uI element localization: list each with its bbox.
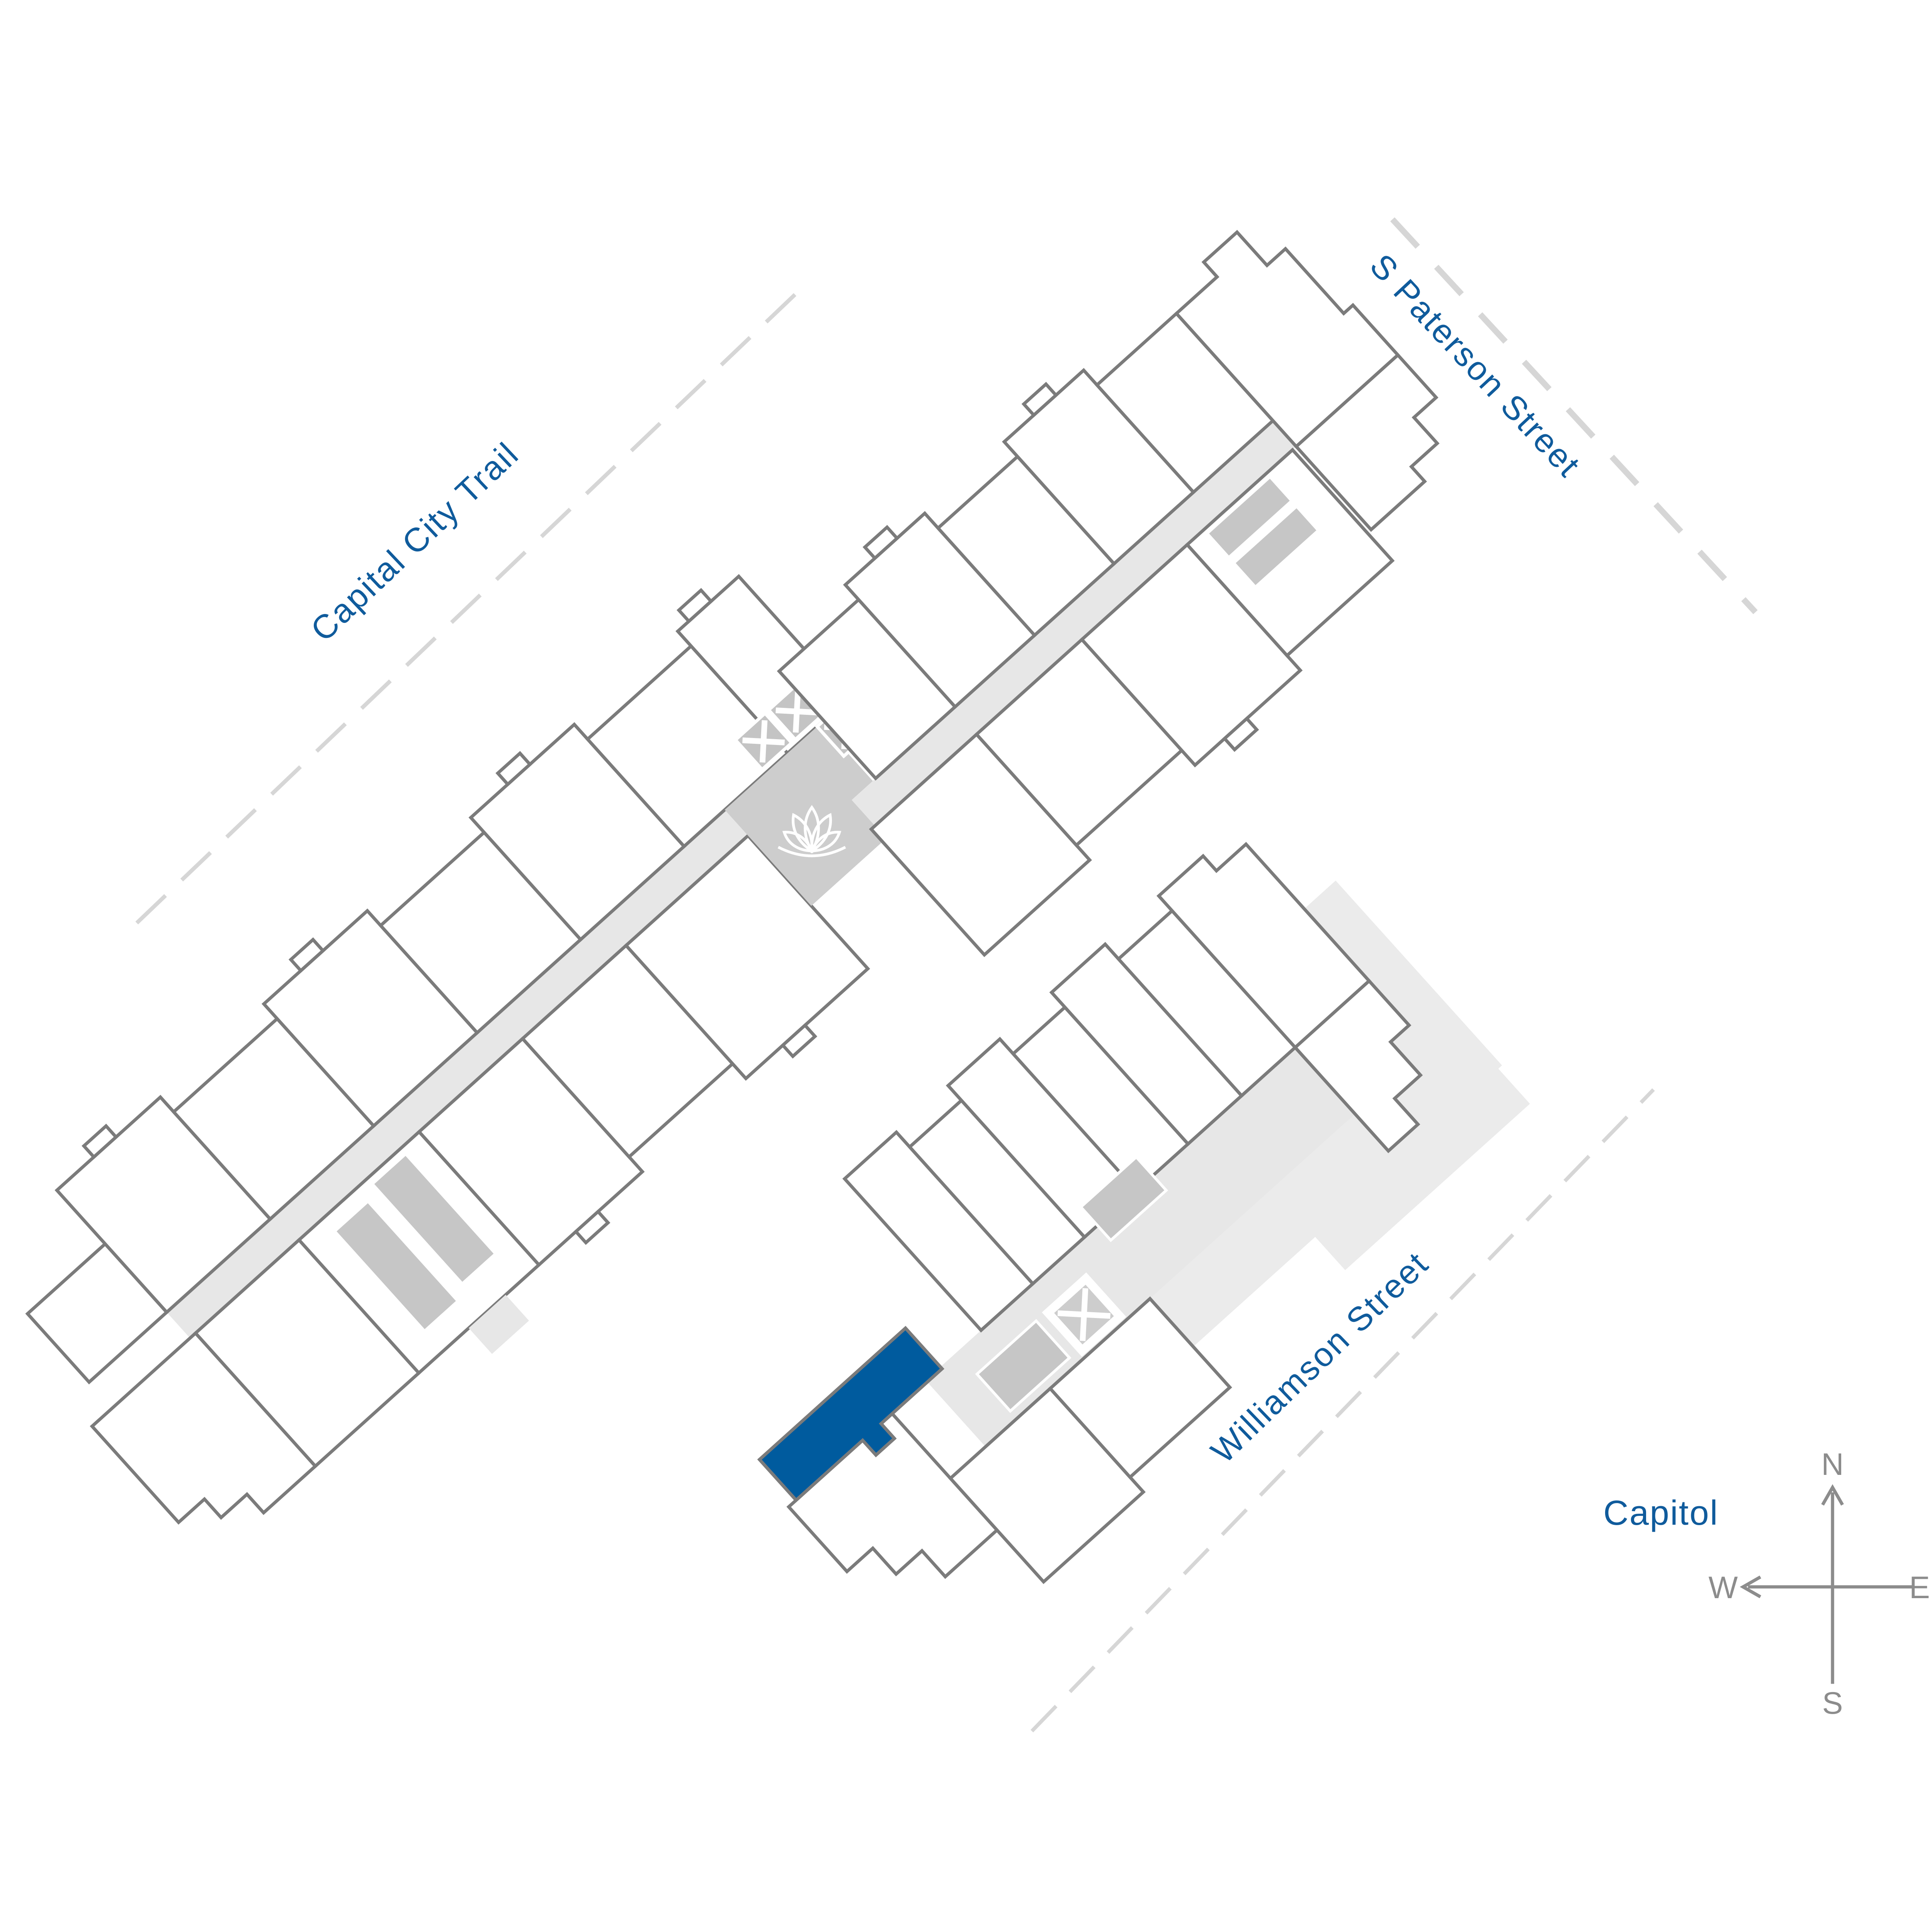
site-plan-map: Capital City Trail S Paterson Street Wil…	[0, 0, 1932, 1932]
compass-e-label: E	[1909, 1570, 1930, 1605]
capitol-label: Capitol	[1603, 1493, 1718, 1532]
compass-s-label: S	[1822, 1686, 1843, 1721]
compass-w-label: W	[1709, 1570, 1738, 1605]
s-paterson-street-line	[1393, 219, 1756, 612]
compass-rose-icon: N S W E	[1709, 1447, 1930, 1721]
compass-n-label: N	[1821, 1447, 1844, 1482]
street-s-paterson: S Paterson Street	[1363, 219, 1756, 612]
capital-city-trail-label: Capital City Trail	[304, 435, 526, 648]
